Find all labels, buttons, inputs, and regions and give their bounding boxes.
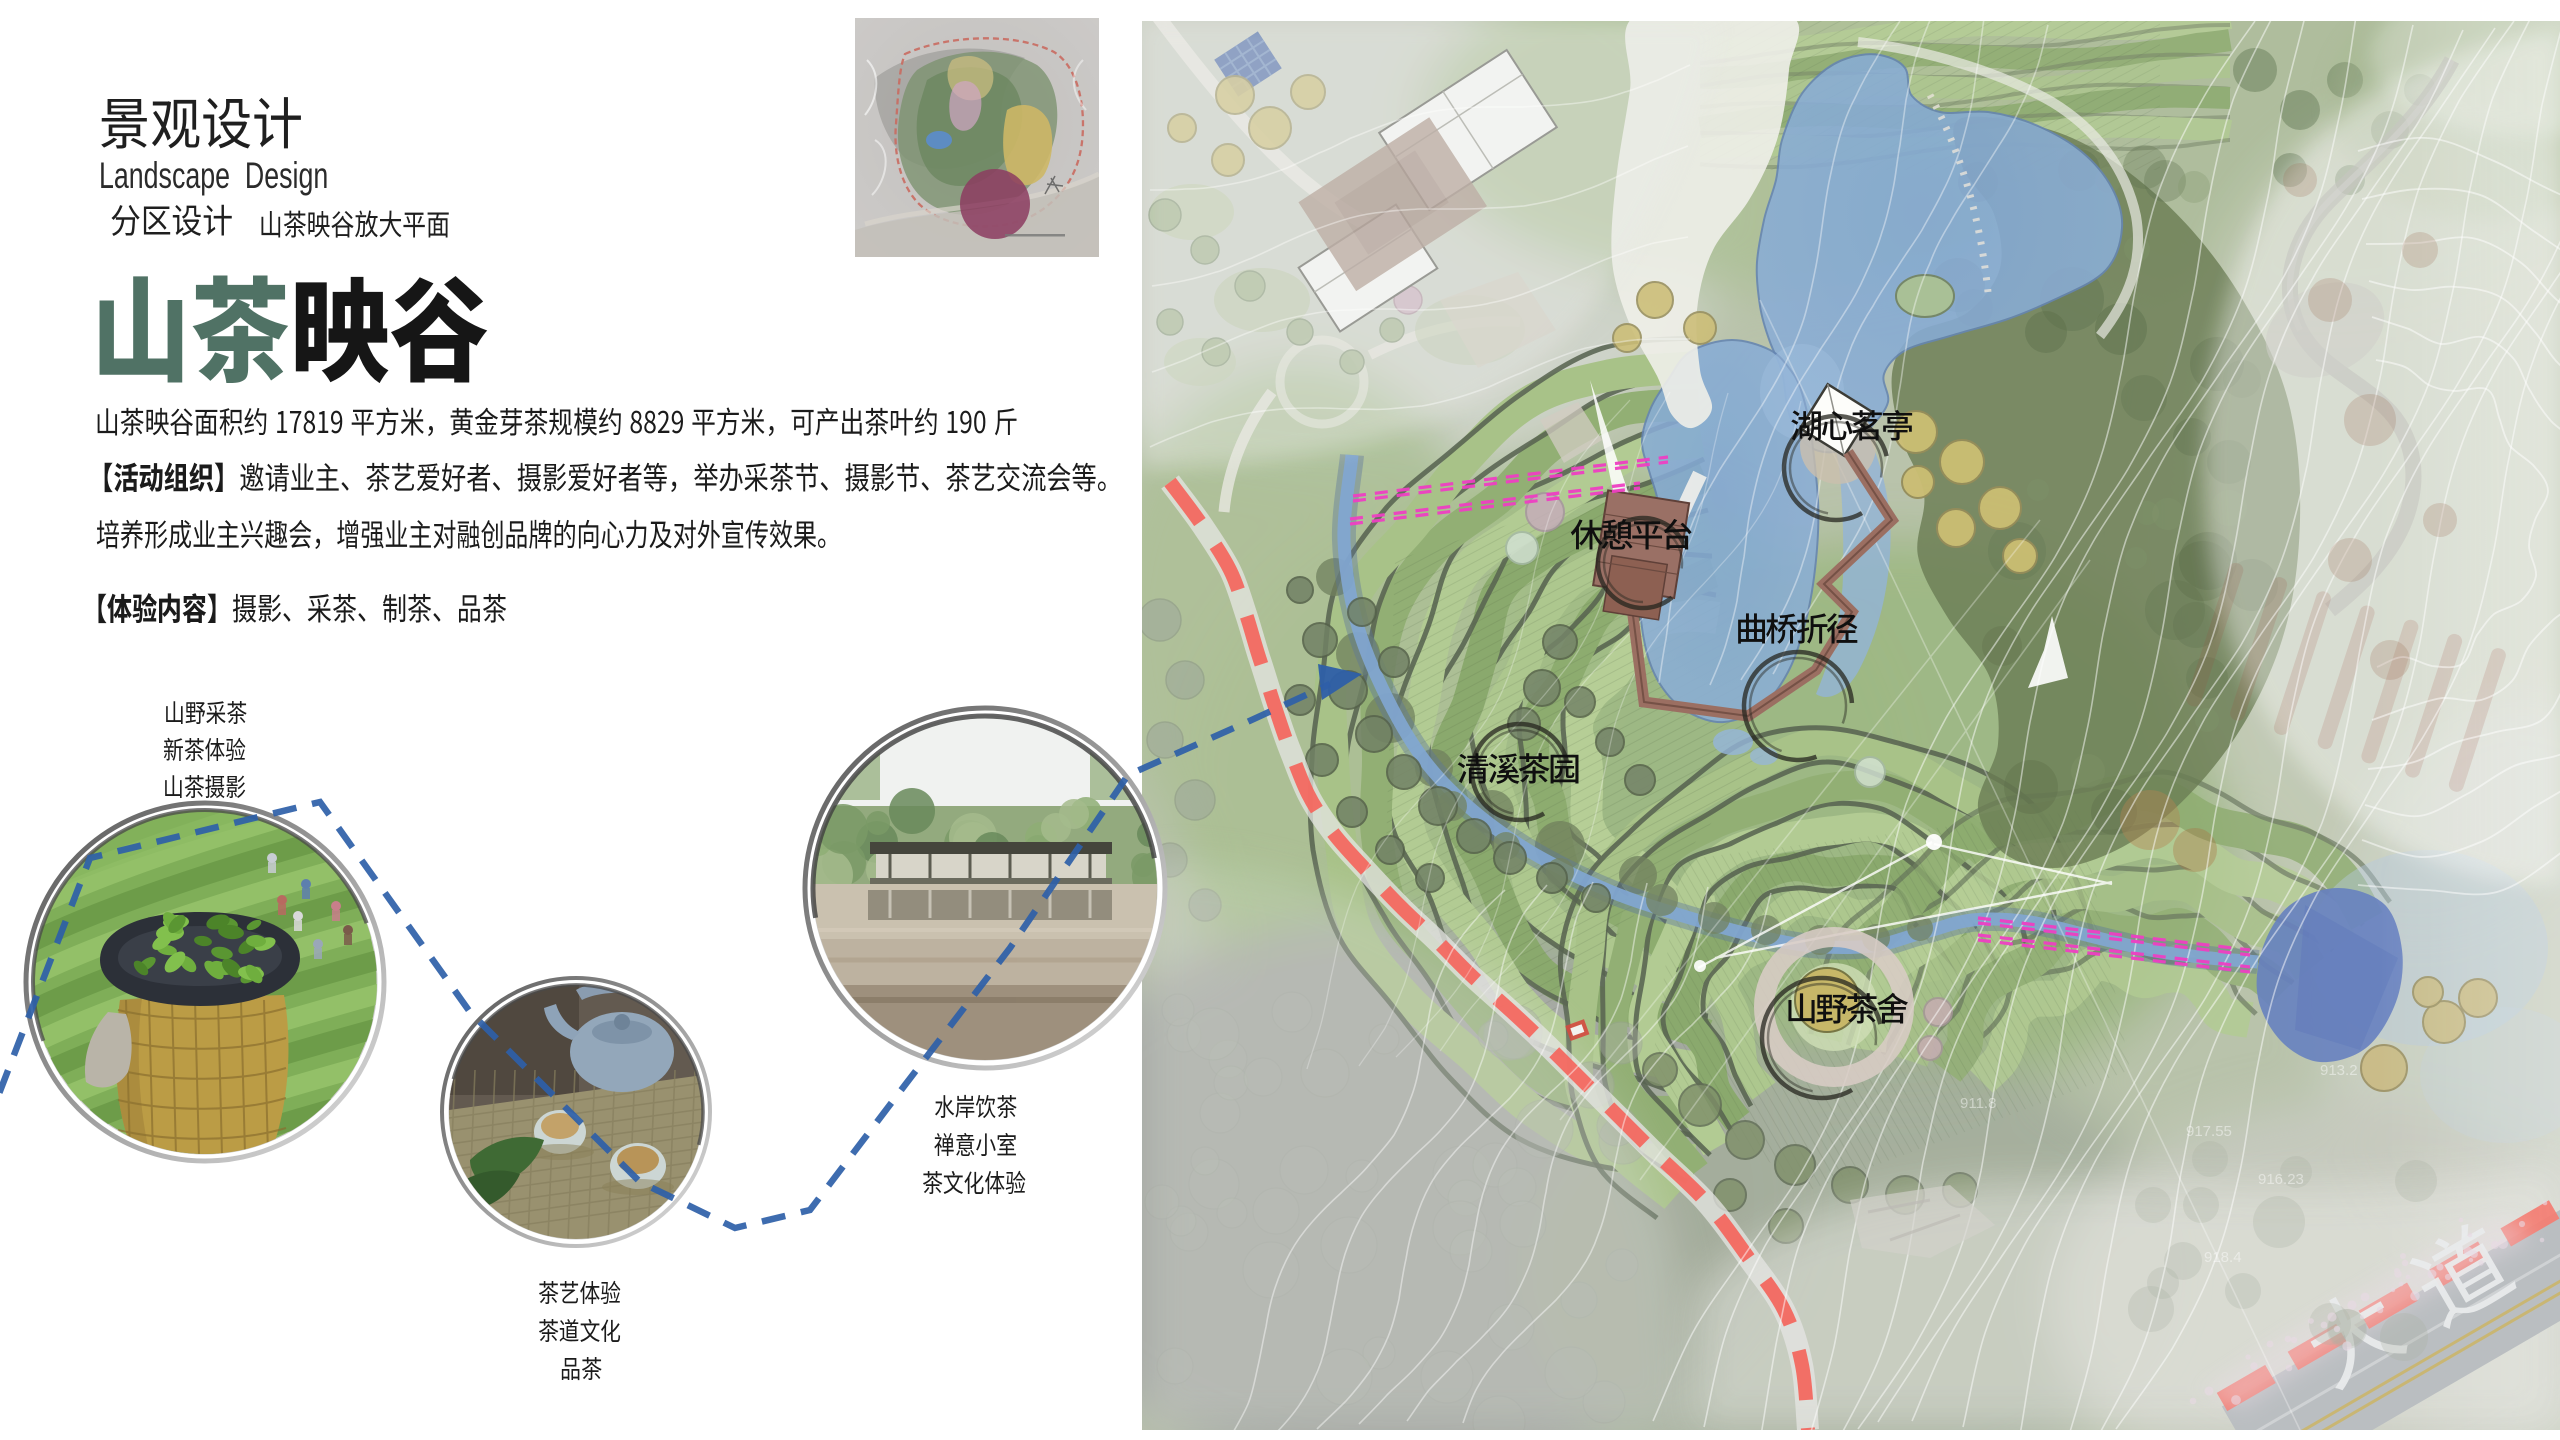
- svg-text:916.23: 916.23: [2258, 1171, 2304, 1188]
- svg-text:917.55: 917.55: [2186, 1123, 2232, 1140]
- svg-text:湖心茗亭: 湖心茗亭: [1790, 400, 1914, 448]
- svg-text:918.4: 918.4: [2204, 1249, 2242, 1266]
- svg-text:山野茶舍: 山野茶舍: [1785, 983, 1909, 1031]
- svg-text:曲桥折径: 曲桥折径: [1735, 603, 1859, 651]
- svg-text:清溪茶园: 清溪茶园: [1457, 743, 1581, 791]
- svg-text:休憩平台: 休憩平台: [1570, 509, 1694, 557]
- svg-text:913.2: 913.2: [2320, 1062, 2358, 1079]
